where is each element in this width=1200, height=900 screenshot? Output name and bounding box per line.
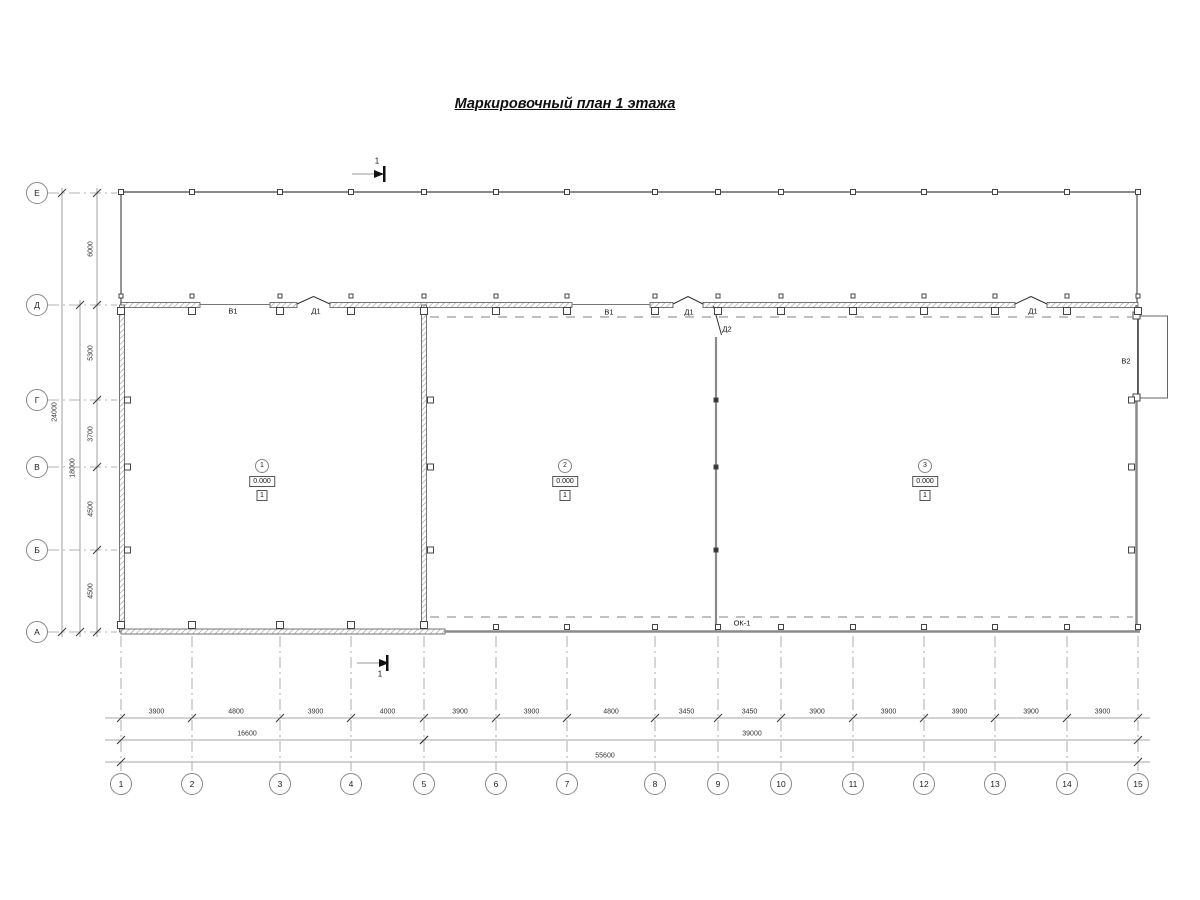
column-square-row-d-outer bbox=[1065, 294, 1069, 298]
column-square-row-e bbox=[278, 190, 283, 195]
column-square-row-d-outer bbox=[349, 294, 353, 298]
column-square-row-e bbox=[494, 190, 499, 195]
column-pier-row-d-inner bbox=[1064, 308, 1071, 315]
column-square-row-d-outer bbox=[119, 294, 123, 298]
section-mark-bottom bbox=[357, 655, 389, 671]
row-axis-label-Д: Д bbox=[34, 300, 40, 310]
label-door-d2: Д2 bbox=[722, 325, 731, 334]
room-number-badge: 2 bbox=[558, 459, 572, 473]
column-pier-row-d-inner bbox=[348, 308, 355, 315]
column-square-row-a bbox=[716, 625, 721, 630]
column-square-row-a bbox=[1065, 625, 1070, 630]
dim-value-bottom: 3450 bbox=[742, 709, 758, 716]
column-square-row-e bbox=[653, 190, 658, 195]
row-axis-label-А: А bbox=[34, 627, 40, 637]
dim-value-bottom: 3900 bbox=[149, 709, 165, 716]
column-square-row-d-outer bbox=[422, 294, 426, 298]
dim-value-bottom: 3450 bbox=[679, 709, 695, 716]
room-elevation: 0.000 bbox=[552, 476, 578, 487]
dim-value-bottom: 3900 bbox=[308, 709, 324, 716]
row-axis-label-Б: Б bbox=[34, 545, 40, 555]
label-window-ok1: ОК-1 bbox=[734, 619, 751, 628]
column-square-row-e bbox=[119, 190, 124, 195]
column-square-row-d-outer bbox=[779, 294, 783, 298]
floor-plan-drawing: Маркировочный план 1 этажа 1 1 В1 Д1 В1 … bbox=[0, 0, 1200, 900]
door-d1-a bbox=[297, 297, 330, 305]
col-axis-label-5: 5 bbox=[422, 779, 427, 789]
dim-value-left: 3700 bbox=[88, 426, 95, 442]
column-square-row-d-outer bbox=[922, 294, 926, 298]
col-axis-label-1: 1 bbox=[119, 779, 124, 789]
column-square-row-e bbox=[190, 190, 195, 195]
col-axis-label-12: 12 bbox=[919, 779, 928, 789]
col-axis-label-10: 10 bbox=[776, 779, 785, 789]
pier-interior-wall-col9 bbox=[714, 398, 718, 402]
column-square-row-a bbox=[779, 625, 784, 630]
row-axis-label-Е: Е bbox=[34, 188, 40, 198]
column-square-row-d-outer bbox=[494, 294, 498, 298]
label-gate-v1-a: В1 bbox=[228, 307, 237, 316]
west-wall bbox=[120, 305, 125, 632]
dim-value-left: 4500 bbox=[88, 583, 95, 599]
pier-east-wall bbox=[1129, 464, 1135, 470]
label-door-d1-b: Д1 bbox=[684, 308, 693, 317]
column-pier-row-d-inner bbox=[652, 308, 659, 315]
dim-value-bottom: 3900 bbox=[452, 709, 468, 716]
col-axis-label-15: 15 bbox=[1133, 779, 1142, 789]
pier-interior-wall-col5 bbox=[428, 547, 434, 553]
label-door-d1-a: Д1 bbox=[311, 307, 320, 316]
column-square-row-a bbox=[494, 625, 499, 630]
column-square-row-e bbox=[993, 190, 998, 195]
room-elevation: 0.000 bbox=[912, 476, 938, 487]
column-square-row-e bbox=[349, 190, 354, 195]
column-square-row-d-outer bbox=[278, 294, 282, 298]
column-pier-row-d-inner bbox=[921, 308, 928, 315]
section-label-bottom: 1 bbox=[378, 670, 382, 679]
label-gate-v2: В2 bbox=[1121, 357, 1130, 366]
dim-value-bottom: 4800 bbox=[603, 709, 619, 716]
south-wall-west bbox=[121, 629, 445, 634]
dim-value-bottom: 3900 bbox=[1095, 709, 1111, 716]
pier-east-wall bbox=[1129, 547, 1135, 553]
dim-value-left: 4500 bbox=[88, 501, 95, 517]
col-axis-label-8: 8 bbox=[653, 779, 658, 789]
column-pier-row-d-inner bbox=[277, 308, 284, 315]
dim-value-left: 5300 bbox=[88, 345, 95, 361]
column-pier-row-d-inner bbox=[715, 308, 722, 315]
row-axis-label-В: В bbox=[34, 462, 40, 472]
column-pier-row-d-inner bbox=[421, 308, 428, 315]
row-axis-label-Г: Г bbox=[35, 395, 40, 405]
column-square-row-d-outer bbox=[851, 294, 855, 298]
dim-value-bottom: 3900 bbox=[881, 709, 897, 716]
column-square-row-e bbox=[1136, 190, 1141, 195]
col-axis-label-6: 6 bbox=[494, 779, 499, 789]
column-pier-row-d-inner bbox=[493, 308, 500, 315]
column-square-row-d-outer bbox=[190, 294, 194, 298]
gate-v2-swing bbox=[1139, 316, 1168, 398]
col-axis-label-9: 9 bbox=[716, 779, 721, 789]
column-square-row-e bbox=[422, 190, 427, 195]
label-gate-v1-b: В1 bbox=[604, 308, 613, 317]
column-pier-row-d-inner bbox=[118, 308, 125, 315]
column-square-row-d-outer bbox=[565, 294, 569, 298]
section-label-top: 1 bbox=[375, 157, 379, 166]
column-square-row-e bbox=[1065, 190, 1070, 195]
column-square-row-d-outer bbox=[716, 294, 720, 298]
interior-wall-col5 bbox=[422, 305, 427, 632]
column-square-row-e bbox=[716, 190, 721, 195]
drawing-title: Маркировочный план 1 этажа bbox=[420, 96, 710, 112]
room-floor-type: 1 bbox=[560, 490, 571, 501]
pier-east-wall bbox=[1129, 397, 1135, 403]
dim-value-bottom: 3900 bbox=[952, 709, 968, 716]
column-pier-row-a bbox=[421, 622, 428, 629]
door-d1-c bbox=[1015, 297, 1047, 305]
pier-interior-wall-col9 bbox=[714, 465, 718, 469]
column-pier-row-d-inner bbox=[850, 308, 857, 315]
dim-subtotal-left: 18000 bbox=[70, 458, 77, 477]
column-square-row-a bbox=[922, 625, 927, 630]
col-axis-label-13: 13 bbox=[990, 779, 999, 789]
col-axis-label-4: 4 bbox=[349, 779, 354, 789]
room-number-badge: 3 bbox=[918, 459, 932, 473]
room-number-badge: 1 bbox=[255, 459, 269, 473]
column-square-row-e bbox=[779, 190, 784, 195]
pier-west-wall bbox=[125, 464, 131, 470]
col-axis-label-7: 7 bbox=[565, 779, 570, 789]
section-mark-top bbox=[352, 166, 386, 182]
column-pier-row-a bbox=[189, 622, 196, 629]
dim-value-bottom: 3900 bbox=[1023, 709, 1039, 716]
column-pier-row-a bbox=[277, 622, 284, 629]
column-pier-row-d-inner bbox=[189, 308, 196, 315]
dim-value-bottom: 4800 bbox=[228, 709, 244, 716]
column-pier-row-d-inner bbox=[564, 308, 571, 315]
dim-total-bottom: 55600 bbox=[595, 753, 614, 760]
column-pier-row-d-inner bbox=[1135, 308, 1142, 315]
pier-west-wall bbox=[125, 547, 131, 553]
column-square-row-a bbox=[565, 625, 570, 630]
column-square-row-e bbox=[565, 190, 570, 195]
column-square-row-e bbox=[851, 190, 856, 195]
pier-interior-wall-col5 bbox=[428, 397, 434, 403]
dim-total-left: 24000 bbox=[52, 402, 59, 421]
column-pier-row-a bbox=[118, 622, 125, 629]
col-axis-label-3: 3 bbox=[278, 779, 283, 789]
col-axis-label-14: 14 bbox=[1062, 779, 1071, 789]
column-pier-row-d-inner bbox=[778, 308, 785, 315]
col-axis-label-2: 2 bbox=[190, 779, 195, 789]
column-square-row-a bbox=[1136, 625, 1141, 630]
pier-west-wall bbox=[125, 397, 131, 403]
east-wall bbox=[1137, 305, 1138, 632]
dim-value-bottom: 4000 bbox=[380, 709, 396, 716]
column-square-row-e bbox=[922, 190, 927, 195]
dim-value-bottom: 3900 bbox=[524, 709, 540, 716]
dim-subtotal-bottom: 16600 bbox=[237, 731, 256, 738]
dim-value-left: 6000 bbox=[88, 241, 95, 257]
label-door-d1-c: Д1 bbox=[1028, 307, 1037, 316]
room-floor-type: 1 bbox=[920, 490, 931, 501]
column-square-row-d-outer bbox=[993, 294, 997, 298]
column-square-row-d-outer bbox=[653, 294, 657, 298]
column-square-row-a bbox=[851, 625, 856, 630]
column-square-row-a bbox=[993, 625, 998, 630]
door-d1-b bbox=[673, 297, 703, 305]
column-square-row-a bbox=[653, 625, 658, 630]
column-pier-row-a bbox=[348, 622, 355, 629]
dim-subtotal-bottom: 39000 bbox=[742, 731, 761, 738]
column-pier-row-d-inner bbox=[992, 308, 999, 315]
room-floor-type: 1 bbox=[257, 490, 268, 501]
room-elevation: 0.000 bbox=[249, 476, 275, 487]
pier-interior-wall-col9 bbox=[714, 548, 718, 552]
dim-value-bottom: 3900 bbox=[809, 709, 825, 716]
column-square-row-d-outer bbox=[1136, 294, 1140, 298]
pier-interior-wall-col5 bbox=[428, 464, 434, 470]
col-axis-label-11: 11 bbox=[849, 779, 858, 789]
plan-linework bbox=[0, 0, 1200, 900]
